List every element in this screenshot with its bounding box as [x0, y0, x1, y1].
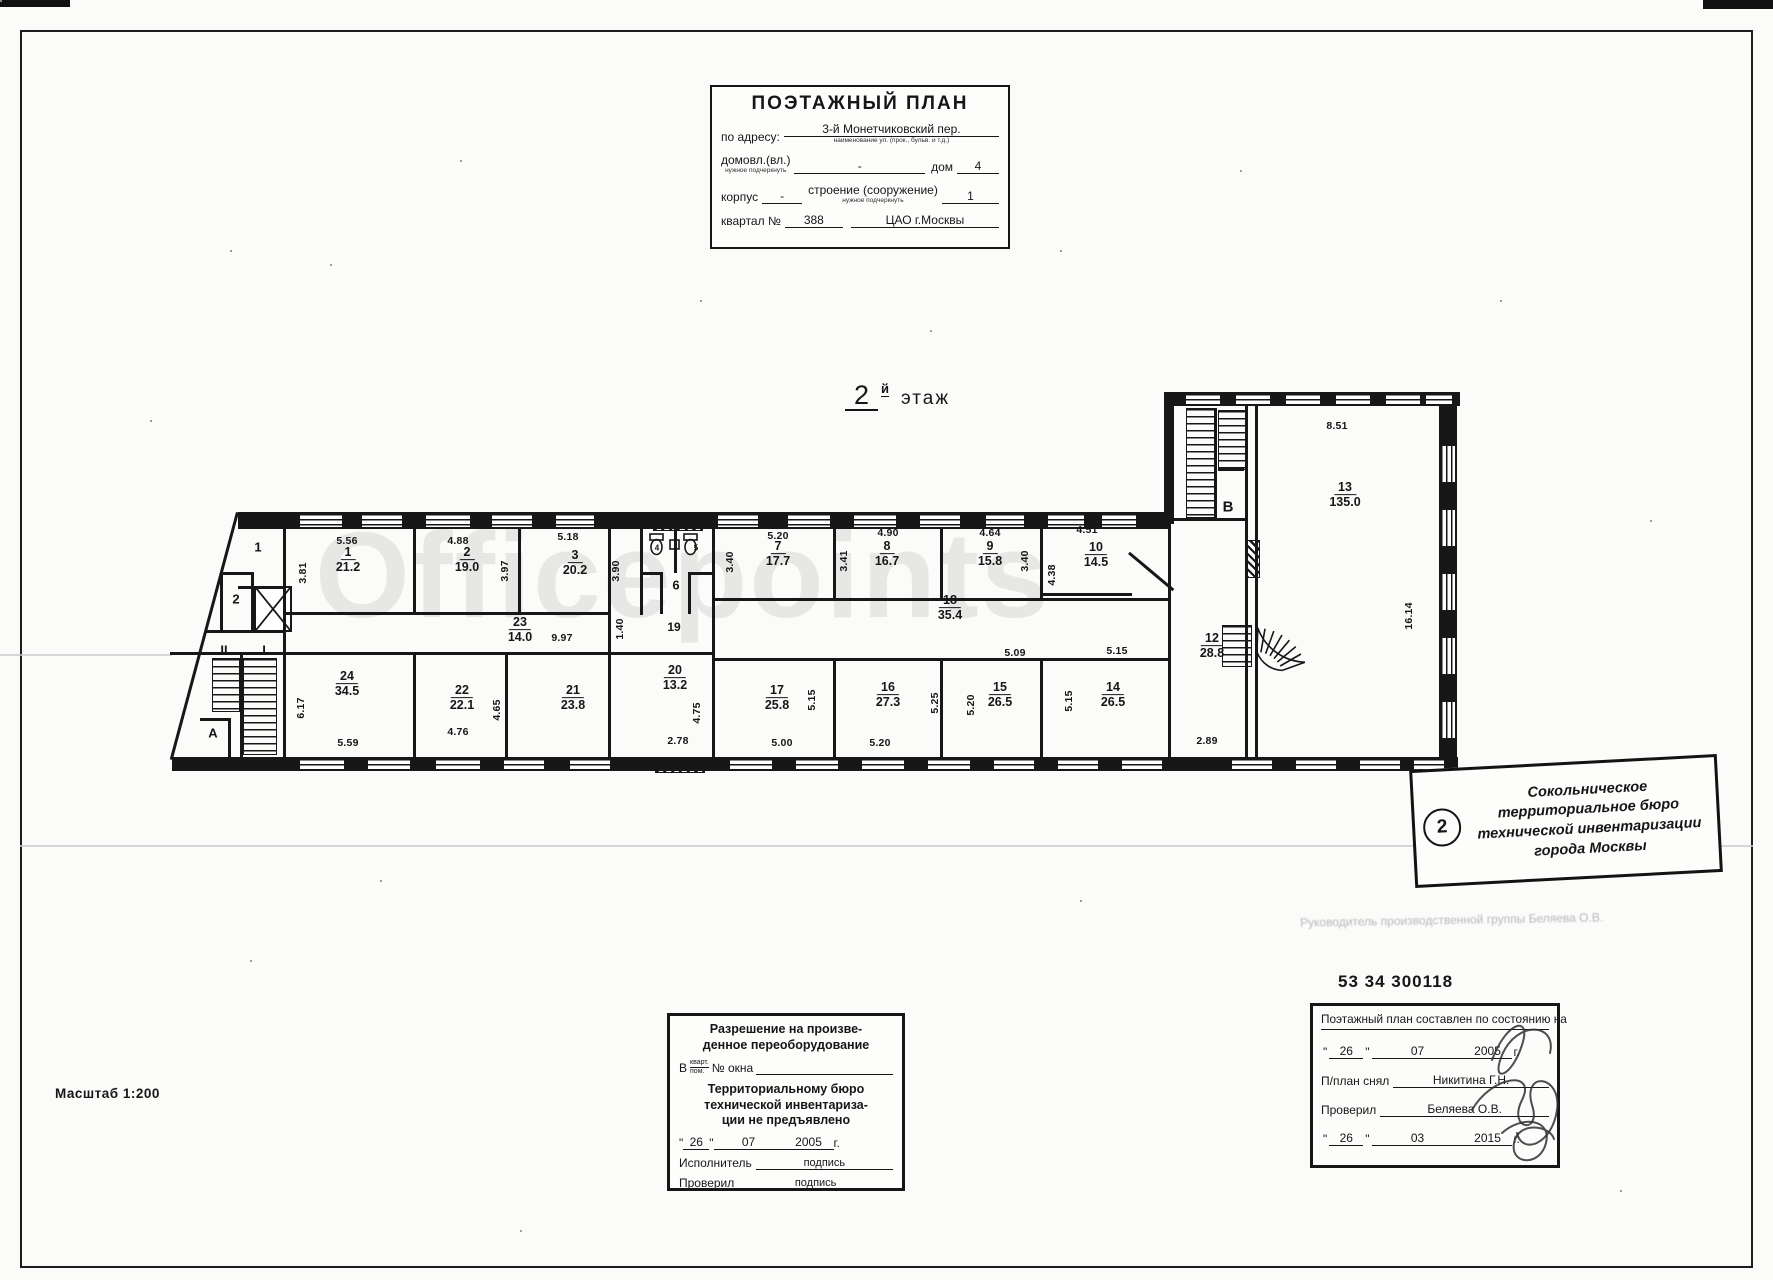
room-22-label: 2222.1 [450, 683, 474, 713]
wall [1040, 529, 1043, 598]
window-icon [1236, 394, 1270, 405]
window-icon [1441, 574, 1455, 610]
dimension-label: 5.15 [1063, 690, 1075, 711]
approval-body-line2: технической инвентариза- [679, 1098, 893, 1114]
dimension-label: 5.18 [557, 531, 578, 543]
window-icon [1441, 702, 1455, 738]
dimension-label: 9.97 [551, 632, 572, 644]
plan-letter-label: II [220, 643, 227, 658]
room-1-label: 121.2 [336, 545, 360, 575]
room-17-label: 1725.8 [765, 683, 789, 713]
room-number: 20 [664, 663, 686, 678]
in-label: В [679, 1061, 687, 1075]
room-7-label: 717.7 [766, 539, 790, 569]
approval-body-line1: Территориальному бюро [679, 1082, 893, 1098]
approval-object-row: В кварт.пом. № окна [679, 1059, 893, 1075]
window-icon [854, 514, 896, 527]
window-icon [1102, 514, 1136, 527]
room-area: 19.0 [455, 561, 479, 575]
wall [283, 612, 611, 615]
window-icon [1441, 638, 1455, 674]
dimension-label: 4.90 [877, 527, 898, 539]
wall [712, 658, 1170, 661]
room-area: 34.5 [335, 685, 359, 699]
window-icon [1336, 394, 1370, 405]
window-icon [556, 514, 594, 527]
dimension-label: 4.75 [691, 702, 703, 723]
room-number: 15 [989, 680, 1011, 695]
room-area: 21.2 [336, 561, 360, 575]
stamp-badge-number: 2 [1422, 808, 1462, 848]
room-number: 3 [568, 548, 583, 563]
window-icon [1296, 759, 1336, 770]
hatched-wall [653, 512, 703, 531]
okna-label: № окна [712, 1061, 753, 1075]
wall [518, 529, 521, 615]
frac-pom: пом. [690, 1068, 709, 1075]
dimension-label: 5.15 [806, 689, 818, 710]
stair-treads-icon [212, 658, 240, 712]
room-area: 26.5 [988, 696, 1012, 710]
room-area: 22.1 [450, 699, 474, 713]
dimension-label: 2.89 [1196, 735, 1217, 747]
date1-month: 07 [1372, 1044, 1464, 1059]
approval-day: 26 [683, 1135, 709, 1150]
room-number: 8 [880, 539, 895, 554]
window-icon [986, 514, 1024, 527]
room-18-label: 1835.4 [938, 593, 962, 623]
dimension-label: 8.51 [1326, 420, 1347, 432]
date2-month: 03 [1372, 1131, 1464, 1146]
room-number: 18 [939, 593, 961, 608]
room-number: 23 [509, 615, 531, 630]
hatched-wall [655, 757, 705, 773]
window-icon [1186, 394, 1220, 405]
wall [833, 529, 836, 601]
dimension-label: 5.56 [336, 535, 357, 547]
room-area: 26.5 [1101, 696, 1125, 710]
wall [940, 529, 943, 598]
wall [1168, 403, 1171, 757]
room-area: 35.4 [938, 609, 962, 623]
wall [205, 630, 285, 633]
room-14-label: 1426.5 [1101, 680, 1125, 710]
approval-title-line1: Разрешение на произве- [679, 1022, 893, 1038]
room-number: 16 [877, 680, 899, 695]
frac-kvart: кварт. [690, 1059, 709, 1067]
wall [674, 529, 677, 573]
wall [1040, 593, 1132, 596]
window-icon [920, 514, 960, 527]
window-icon [368, 759, 410, 770]
room-10-label: 1014.5 [1084, 540, 1108, 570]
dimension-label: 3.90 [610, 560, 622, 581]
dimension-label: 5.15 [1106, 645, 1127, 657]
room-12-label: 1228.8 [1200, 631, 1224, 661]
executor-label: Исполнитель [679, 1156, 752, 1170]
executor-row: Исполнитель подпись [679, 1156, 893, 1170]
wall [1040, 658, 1043, 757]
wall [238, 586, 285, 589]
window-icon [504, 759, 544, 770]
room-15-label: 1526.5 [988, 680, 1012, 710]
wall [833, 658, 836, 757]
inventory-number: 53 34 300118 [1338, 972, 1453, 992]
window-icon [570, 759, 610, 770]
window-icon [1122, 759, 1162, 770]
room-20-label: 2013.2 [663, 663, 687, 693]
window-icon [1441, 446, 1455, 482]
dimension-label: 5.20 [767, 530, 788, 542]
stamp-text: Сокольническое территориальное бюро техн… [1467, 774, 1711, 865]
room-area: 20.2 [563, 564, 587, 578]
dimension-label: 3.40 [1019, 550, 1031, 571]
approval-date-suffix: г. [834, 1136, 840, 1150]
dimension-label: 4.76 [447, 726, 468, 738]
wall [413, 655, 416, 757]
plan-letter-label: I [262, 643, 266, 658]
room-area: 13.2 [663, 679, 687, 693]
wall [712, 529, 715, 757]
date2-day: 26 [1329, 1131, 1363, 1146]
dimension-label: 2.78 [667, 735, 688, 747]
approval-box: Разрешение на произве- денное переоборуд… [667, 1013, 905, 1191]
room-area: 14.0 [508, 631, 532, 645]
window-icon [1232, 759, 1272, 770]
scale-label: Масштаб 1:200 [55, 1086, 160, 1101]
room-23-label: 2314.0 [508, 615, 532, 645]
plan-letter-label: 5 [694, 544, 698, 553]
dimension-label: 3.97 [499, 560, 511, 581]
room-area: 17.7 [766, 555, 790, 569]
spiral-stair-icon [1256, 616, 1351, 680]
wall [505, 655, 508, 757]
room-area: 135.0 [1329, 496, 1360, 510]
room-area: 25.8 [765, 699, 789, 713]
window-icon [1426, 394, 1452, 405]
room-16-label: 1627.3 [876, 680, 900, 710]
room-2-label: 219.0 [455, 545, 479, 575]
room-number: 13 [1334, 480, 1356, 495]
date1-day: 26 [1329, 1044, 1363, 1059]
dimension-label: 4.64 [979, 527, 1000, 539]
dimension-label: 5.09 [1004, 647, 1025, 659]
room-number: 21 [562, 683, 584, 698]
room-number: 17 [766, 683, 788, 698]
wall [1168, 518, 1248, 521]
dimension-label: 3.81 [297, 562, 309, 583]
dimension-label: 6.17 [295, 697, 307, 718]
room-area: 28.8 [1200, 647, 1224, 661]
window-icon [788, 514, 830, 527]
dimension-label: 4.88 [447, 535, 468, 547]
dimension-label: 3.41 [838, 550, 850, 571]
dimension-label: 5.20 [869, 737, 890, 749]
approval-month: 07 [714, 1135, 784, 1150]
window-icon [300, 514, 342, 527]
bti-stamp: 2 Сокольническое территориальное бюро те… [1409, 754, 1723, 888]
wall [170, 652, 715, 655]
window-icon [1386, 394, 1420, 405]
window-icon [436, 759, 480, 770]
plan-letter-label: 6 [672, 578, 679, 593]
approval-date-row: "26" 07 2005 г. [679, 1135, 893, 1150]
plan-letter-label: 2 [232, 592, 239, 607]
wall [413, 529, 416, 615]
executor-value: подпись [756, 1157, 893, 1170]
window-icon [730, 759, 772, 770]
elevator-shaft [254, 586, 292, 632]
window-icon [994, 759, 1034, 770]
wall [690, 572, 715, 575]
approval-year: 2005 [784, 1135, 834, 1150]
dimension-label: 3.40 [724, 551, 736, 572]
plan-letter-label: 1 [254, 540, 261, 555]
room-number: 9 [983, 539, 998, 554]
room-number: 10 [1085, 540, 1107, 555]
wall [283, 529, 286, 757]
handwritten-signatures [1462, 1015, 1602, 1175]
dimension-label: 5.59 [337, 737, 358, 749]
room-area: 16.7 [875, 555, 899, 569]
stair-treads-icon [1218, 410, 1246, 470]
room-8-label: 816.7 [875, 539, 899, 569]
approval-body-line3: ции не предъявлено [679, 1113, 893, 1129]
hatched-wall [1245, 540, 1260, 578]
dimension-label: 5.25 [929, 692, 941, 713]
window-icon [300, 759, 344, 770]
stair-treads-icon [1186, 408, 1216, 518]
stair-treads-icon [243, 658, 277, 755]
wall [660, 572, 663, 614]
wall [220, 572, 254, 575]
room-number: 2 [460, 545, 475, 560]
room-9-label: 915.8 [978, 539, 1002, 569]
room-area: 15.8 [978, 555, 1002, 569]
room-number: 1 [341, 545, 356, 560]
room-13-label: 13135.0 [1329, 480, 1360, 510]
plan-letter-label: 19 [667, 620, 680, 634]
plan-letter-label: 4 [655, 544, 659, 553]
surveyor-label: П/план снял [1321, 1074, 1389, 1088]
wall [688, 572, 691, 614]
dimension-label: 4.51 [1076, 524, 1097, 536]
window-icon [426, 514, 470, 527]
room-area: 14.5 [1084, 556, 1108, 570]
dimension-label: 4.65 [491, 699, 503, 720]
checker-label: Проверил [1321, 1103, 1376, 1117]
dimension-label: 5.20 [965, 694, 977, 715]
window-icon [928, 759, 970, 770]
approval-checker-label: Проверил [679, 1176, 734, 1190]
approval-title-line2: денное переоборудование [679, 1038, 893, 1054]
room-21-label: 2123.8 [561, 683, 585, 713]
window-icon [718, 514, 758, 527]
approval-checker-row: Проверил подпись [679, 1176, 893, 1190]
dimension-label: 16.14 [1403, 602, 1415, 629]
stair-treads-icon [1222, 625, 1252, 667]
room-area: 27.3 [876, 696, 900, 710]
wall [251, 572, 254, 632]
window-icon [1441, 510, 1455, 546]
room-number: 14 [1102, 680, 1124, 695]
room-number: 24 [336, 669, 358, 684]
scanned-floor-plan-sheet: Officepoints ПОЭТАЖНЫЙ ПЛАН по адресу: 3… [0, 0, 1773, 1280]
room-3-label: 320.2 [563, 548, 587, 578]
window-icon [1058, 759, 1098, 770]
dimension-label: 1.40 [614, 618, 626, 639]
window-icon [1360, 759, 1400, 770]
window-icon [492, 514, 532, 527]
wall [228, 718, 231, 757]
room-number: 22 [451, 683, 473, 698]
window-icon [362, 514, 402, 527]
window-icon [796, 759, 838, 770]
room-number: 12 [1201, 631, 1223, 646]
dimension-label: 4.38 [1046, 564, 1058, 585]
dimension-label: 5.00 [771, 737, 792, 749]
room-24-label: 2434.5 [335, 669, 359, 699]
plan-letter-label: В [1223, 499, 1234, 516]
window-icon [1286, 394, 1320, 405]
wall [640, 572, 662, 575]
wall [200, 718, 230, 721]
approval-checker-value: подпись [738, 1177, 893, 1190]
window-icon [862, 759, 904, 770]
room-area: 23.8 [561, 699, 585, 713]
plan-letter-label: А [208, 726, 217, 741]
wall [1255, 406, 1258, 757]
